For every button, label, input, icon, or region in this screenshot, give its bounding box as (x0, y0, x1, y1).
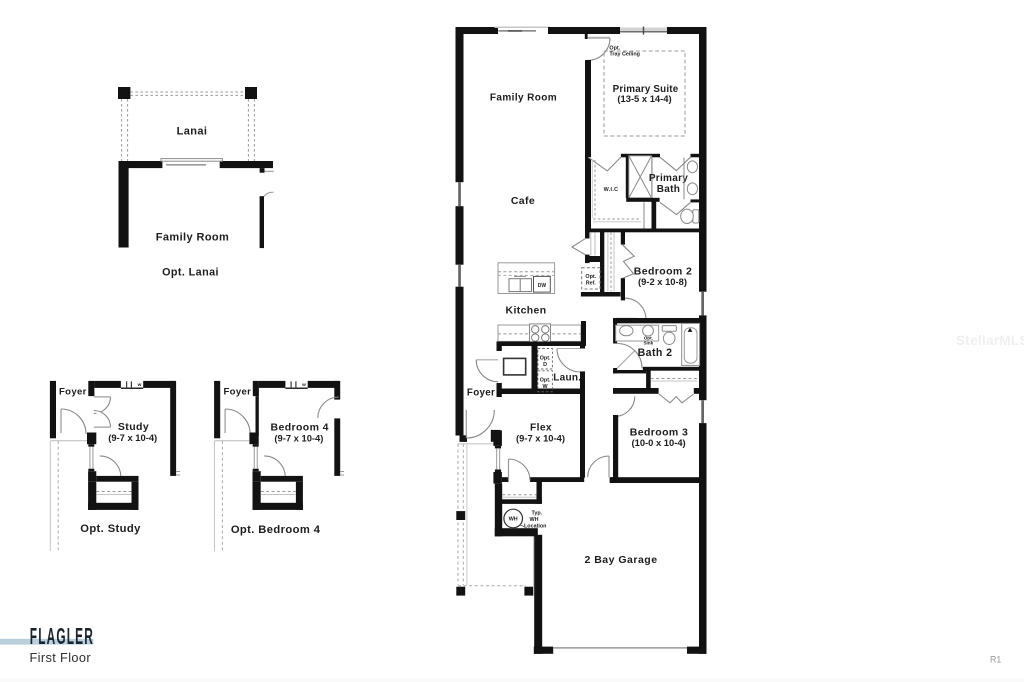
svg-text:Cafe: Cafe (511, 195, 535, 207)
svg-text:Tray Ceiling: Tray Ceiling (609, 51, 640, 57)
svg-text:Opt. Lanai: Opt. Lanai (162, 266, 219, 278)
svg-text:Opt.: Opt. (540, 356, 551, 362)
svg-text:Opt.: Opt. (540, 377, 551, 383)
svg-text:WH: WH (509, 517, 518, 523)
svg-text:w: w (137, 383, 142, 388)
svg-text:Lanai: Lanai (177, 126, 208, 138)
svg-text:Family Room: Family Room (156, 232, 229, 244)
svg-text:Opt. Bedroom 4: Opt. Bedroom 4 (231, 524, 321, 536)
svg-text:Bath 2: Bath 2 (638, 347, 673, 359)
svg-text:Opt. Study: Opt. Study (80, 523, 141, 535)
svg-text:Location: Location (524, 524, 546, 530)
svg-text:Opt.: Opt. (585, 274, 596, 280)
svg-text:Sink: Sink (643, 341, 653, 346)
svg-text:W.I.C: W.I.C (604, 187, 619, 193)
svg-text:D: D (543, 362, 547, 368)
svg-text:W: W (543, 384, 549, 390)
svg-text:Laun.: Laun. (553, 373, 581, 384)
svg-text:Family Room: Family Room (490, 93, 557, 104)
svg-text:(9-7 x 10-4): (9-7 x 10-4) (274, 433, 323, 444)
svg-text:Ref.: Ref. (586, 280, 597, 286)
svg-text:WH: WH (530, 517, 539, 523)
svg-text:FLAGLER: FLAGLER (30, 623, 94, 649)
svg-text:(9-2 x 10-8): (9-2 x 10-8) (638, 276, 687, 287)
svg-text:StellarMLS: StellarMLS (956, 333, 1024, 348)
svg-text:(13-5 x 14-4): (13-5 x 14-4) (617, 93, 671, 104)
svg-text:R1: R1 (990, 655, 1001, 665)
svg-text:Foyer: Foyer (467, 388, 495, 399)
svg-text:(9-7 x 10-4): (9-7 x 10-4) (516, 433, 565, 444)
svg-text:Typ.: Typ. (532, 511, 543, 517)
svg-text:(10-0 x 10-4): (10-0 x 10-4) (631, 437, 685, 448)
svg-text:Foyer: Foyer (59, 387, 87, 398)
svg-text:DW: DW (538, 283, 547, 289)
svg-text:Primary: Primary (649, 173, 688, 184)
svg-text:w: w (301, 383, 306, 388)
svg-text:2 Bay Garage: 2 Bay Garage (584, 554, 657, 566)
svg-text:First Floor: First Floor (30, 650, 92, 665)
svg-text:Kitchen: Kitchen (506, 305, 547, 316)
svg-text:Bath: Bath (657, 184, 680, 195)
svg-text:(9-7 x 10-4): (9-7 x 10-4) (108, 432, 157, 443)
svg-text:Foyer: Foyer (224, 387, 252, 398)
